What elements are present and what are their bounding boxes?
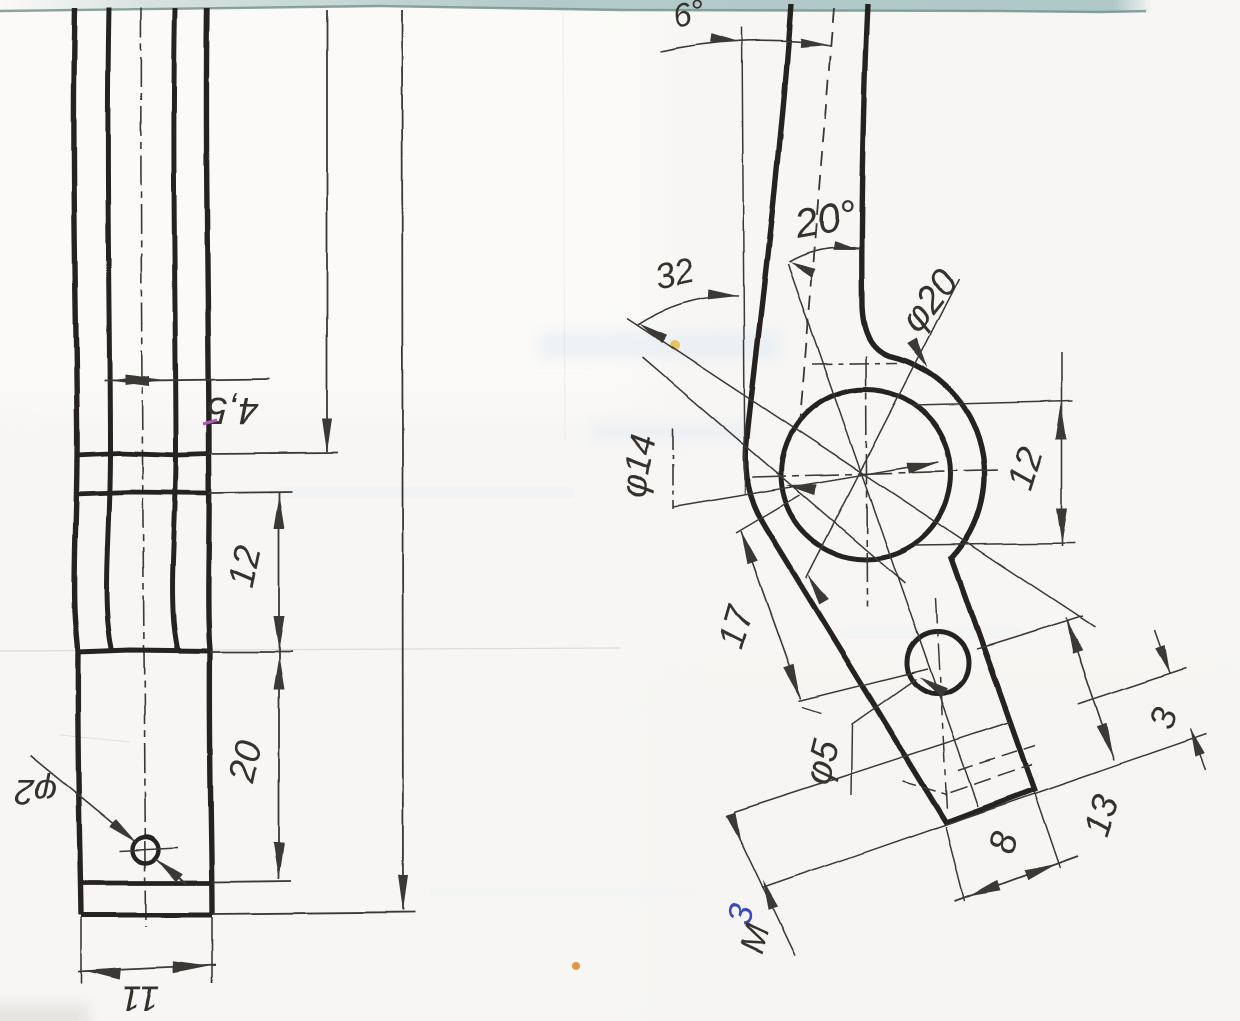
- svg-text:11: 11: [121, 978, 159, 1019]
- svg-text:20: 20: [221, 737, 270, 787]
- svg-text:32: 32: [651, 251, 697, 297]
- svg-text:φ2: φ2: [15, 772, 57, 811]
- svg-text:4,5: 4,5: [206, 389, 260, 431]
